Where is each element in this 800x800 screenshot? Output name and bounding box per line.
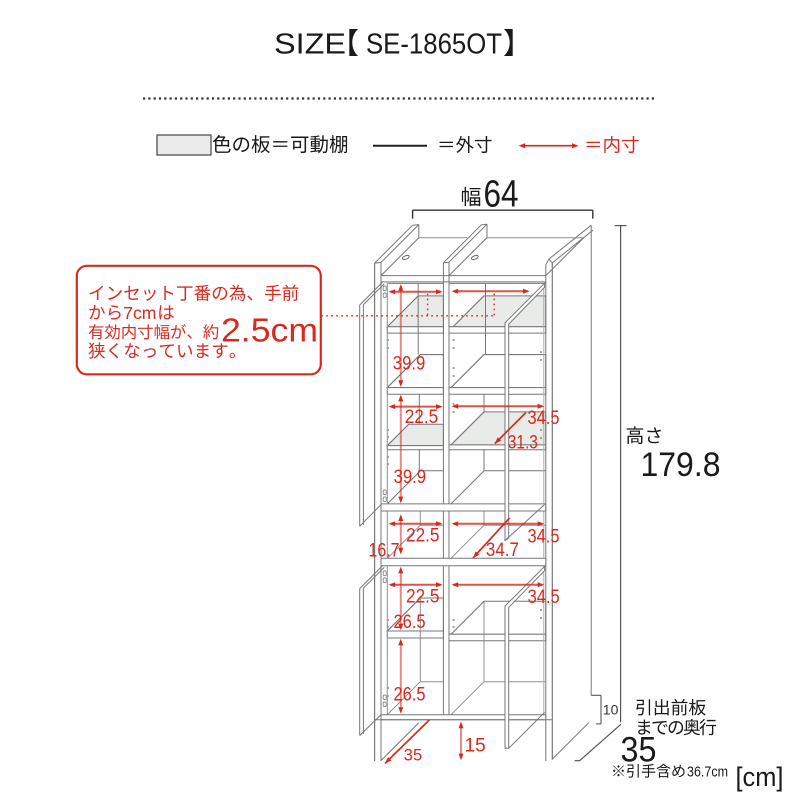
svg-text:34.5: 34.5: [528, 527, 560, 548]
svg-text:SIZE: SIZE: [274, 29, 346, 61]
svg-text:64: 64: [484, 174, 519, 216]
svg-text:179.8: 179.8: [641, 446, 721, 484]
svg-text:39.9: 39.9: [393, 353, 426, 374]
svg-text:SE-1865OT: SE-1865OT: [366, 29, 502, 61]
svg-text:35: 35: [621, 731, 657, 770]
svg-text:34.5: 34.5: [528, 408, 560, 429]
svg-text:36.7cm: 36.7cm: [687, 764, 728, 781]
svg-text:22.5: 22.5: [405, 407, 439, 428]
svg-text:26.5: 26.5: [394, 612, 426, 633]
svg-text:39.9: 39.9: [394, 467, 427, 488]
svg-text:22.5: 22.5: [406, 526, 440, 547]
svg-text:2.5cm: 2.5cm: [221, 312, 318, 349]
svg-text:34.5: 34.5: [528, 587, 560, 608]
svg-text:35: 35: [404, 747, 422, 765]
svg-text:22.5: 22.5: [406, 587, 440, 608]
svg-text:31.3: 31.3: [508, 433, 538, 454]
svg-text:16.7: 16.7: [369, 541, 400, 562]
svg-text:[cm]: [cm]: [736, 762, 784, 792]
svg-text:15: 15: [465, 736, 486, 757]
svg-text:10: 10: [603, 702, 619, 718]
svg-text:26.5: 26.5: [394, 685, 426, 706]
svg-text:7cm: 7cm: [123, 303, 156, 323]
svg-text:34.7: 34.7: [486, 540, 519, 561]
